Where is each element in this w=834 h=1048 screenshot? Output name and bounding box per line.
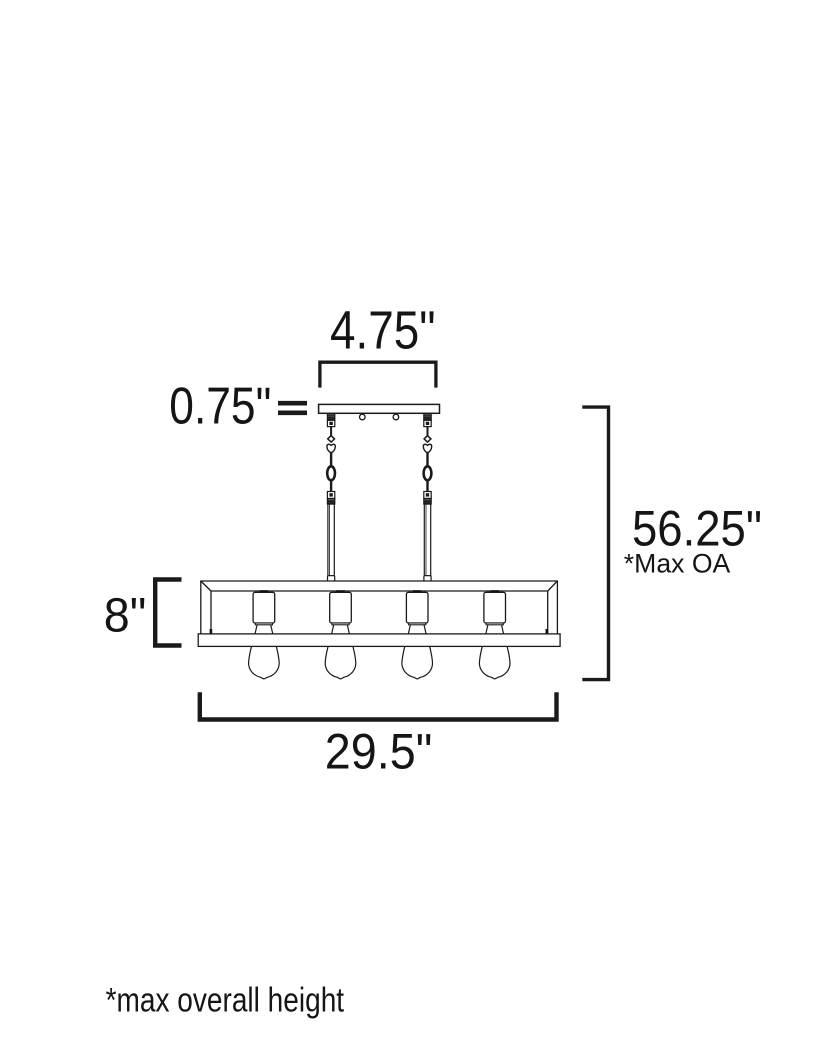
svg-text:8": 8" [104,589,147,643]
svg-text:4.75": 4.75" [330,302,436,361]
svg-text:29.5": 29.5" [325,723,433,779]
svg-text:*max overall height: *max overall height [106,982,345,1020]
svg-text:*Max OA: *Max OA [624,548,731,578]
svg-text:0.75": 0.75" [169,376,271,434]
